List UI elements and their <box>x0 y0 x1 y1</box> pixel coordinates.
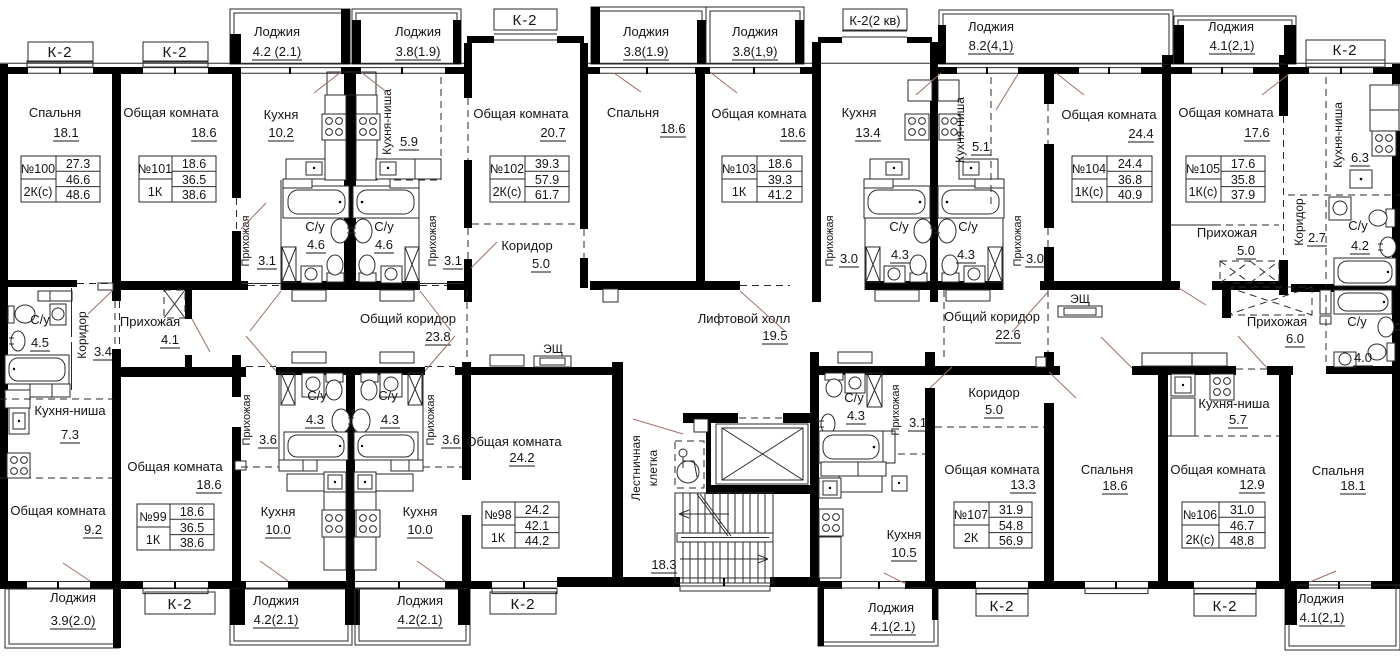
svg-text:61.7: 61.7 <box>535 188 559 202</box>
svg-text:Прихожая: Прихожая <box>1197 225 1257 240</box>
svg-text:Лоджия: Лоджия <box>50 590 96 605</box>
svg-text:18.6: 18.6 <box>1102 478 1127 493</box>
svg-text:3.8(1.9): 3.8(1.9) <box>624 44 669 59</box>
svg-text:Лоджия: Лоджия <box>253 593 299 608</box>
svg-text:Лоджия: Лоджия <box>968 19 1014 34</box>
svg-text:С/у: С/у <box>1347 314 1367 329</box>
svg-text:5.0: 5.0 <box>532 256 550 271</box>
svg-text:48.8: 48.8 <box>1230 534 1254 548</box>
svg-text:Кухня: Кухня <box>403 504 438 519</box>
svg-text:Лоджия: Лоджия <box>623 24 669 39</box>
svg-text:5.7: 5.7 <box>1229 412 1247 427</box>
svg-text:Кухня-ниша: Кухня-ниша <box>1331 102 1345 168</box>
svg-text:18.1: 18.1 <box>53 125 78 140</box>
svg-text:13.3: 13.3 <box>1010 477 1035 492</box>
svg-text:18.6: 18.6 <box>191 125 216 140</box>
svg-text:Общая комната: Общая комната <box>944 462 1040 477</box>
svg-text:№104: №104 <box>1072 162 1106 176</box>
svg-text:13.4: 13.4 <box>855 125 880 140</box>
svg-text:Общая комната: Общая комната <box>10 503 106 518</box>
svg-text:С/у: С/у <box>1348 218 1368 233</box>
svg-text:Кухня-ниша: Кухня-ниша <box>34 403 106 418</box>
svg-text:3.1: 3.1 <box>444 253 462 268</box>
svg-text:18.6: 18.6 <box>768 157 792 171</box>
svg-text:38.6: 38.6 <box>180 536 204 550</box>
svg-text:18.6: 18.6 <box>182 157 206 171</box>
svg-text:2К(с): 2К(с) <box>24 185 53 199</box>
svg-text:Кухня-ниша: Кухня-ниша <box>953 97 967 163</box>
svg-text:9.2: 9.2 <box>84 522 102 537</box>
svg-text:1К: 1К <box>146 533 161 547</box>
svg-text:К-2(2 кв): К-2(2 кв) <box>849 13 900 28</box>
svg-text:1К(с): 1К(с) <box>1075 185 1104 199</box>
svg-text:1К(с): 1К(с) <box>1189 185 1218 199</box>
svg-text:27.3: 27.3 <box>66 157 90 171</box>
svg-text:4.1: 4.1 <box>161 332 179 347</box>
svg-text:К-2: К-2 <box>1332 42 1357 59</box>
svg-text:4.1(2.1): 4.1(2.1) <box>871 619 916 634</box>
svg-text:31.9: 31.9 <box>999 503 1023 517</box>
svg-text:17.6: 17.6 <box>1244 125 1269 140</box>
svg-text:12.9: 12.9 <box>1239 477 1264 492</box>
svg-text:56.9: 56.9 <box>999 534 1023 548</box>
svg-text:5.0: 5.0 <box>1237 243 1255 258</box>
svg-text:Общая комната: Общая комната <box>711 106 807 121</box>
svg-text:4.3: 4.3 <box>306 412 324 427</box>
svg-text:36.5: 36.5 <box>180 521 204 535</box>
svg-text:Общая комната: Общая комната <box>466 434 562 449</box>
svg-text:4.2(2.1): 4.2(2.1) <box>398 612 443 627</box>
svg-text:Кухня: Кухня <box>261 504 296 519</box>
svg-text:4.2 (2.1): 4.2 (2.1) <box>253 44 301 59</box>
svg-text:С/у: С/у <box>30 312 50 327</box>
svg-text:4.1(2,1): 4.1(2,1) <box>1300 610 1345 625</box>
svg-text:Кухня: Кухня <box>264 107 299 122</box>
svg-text:3.4: 3.4 <box>94 344 112 359</box>
svg-text:Лоджия: Лоджия <box>397 593 443 608</box>
svg-text:42.1: 42.1 <box>525 519 549 533</box>
svg-text:3.1: 3.1 <box>909 415 927 430</box>
svg-text:36.8: 36.8 <box>1118 173 1142 187</box>
svg-text:4.5: 4.5 <box>31 335 49 350</box>
svg-text:№101: №101 <box>138 162 172 176</box>
svg-text:Лоджия: Лоджия <box>1208 19 1254 34</box>
svg-text:Лоджия: Лоджия <box>732 24 778 39</box>
svg-text:№99: №99 <box>139 510 166 524</box>
svg-text:Прихожая: Прихожая <box>427 215 439 266</box>
svg-text:3.0: 3.0 <box>840 251 858 266</box>
svg-text:18.6: 18.6 <box>660 121 685 136</box>
svg-text:39.3: 39.3 <box>768 173 792 187</box>
svg-text:С/у: С/у <box>305 219 325 234</box>
svg-text:41.2: 41.2 <box>768 188 792 202</box>
svg-text:3.0: 3.0 <box>1026 251 1044 266</box>
svg-text:39.3: 39.3 <box>535 157 559 171</box>
svg-text:С/у: С/у <box>889 219 909 234</box>
svg-text:Прихожая: Прихожая <box>1247 314 1307 329</box>
svg-text:23.8: 23.8 <box>425 329 450 344</box>
svg-text:4.2(2.1): 4.2(2.1) <box>254 612 299 627</box>
svg-text:Кухня: Кухня <box>887 527 922 542</box>
svg-text:С/у: С/у <box>378 388 398 403</box>
svg-text:54.8: 54.8 <box>999 519 1023 533</box>
svg-text:2.7: 2.7 <box>1308 230 1326 245</box>
svg-text:№100: №100 <box>21 162 55 176</box>
svg-text:3.6: 3.6 <box>259 432 277 447</box>
svg-text:18.6: 18.6 <box>196 477 221 492</box>
svg-text:2К(с): 2К(с) <box>493 185 522 199</box>
svg-text:3.8(1,9): 3.8(1,9) <box>733 44 778 59</box>
svg-text:К-2: К-2 <box>167 596 192 613</box>
svg-text:1К: 1К <box>148 185 163 199</box>
svg-text:ЭЩ: ЭЩ <box>1070 292 1090 306</box>
svg-text:К-2: К-2 <box>512 12 537 29</box>
svg-text:Прихожая: Прихожая <box>120 314 180 329</box>
svg-text:Лоджия: Лоджия <box>254 24 300 39</box>
svg-text:46.7: 46.7 <box>1230 519 1254 533</box>
svg-text:24.2: 24.2 <box>525 503 549 517</box>
svg-text:Лоджия: Лоджия <box>868 600 914 615</box>
svg-text:4.3: 4.3 <box>891 247 909 262</box>
svg-text:Спальня: Спальня <box>607 105 659 120</box>
svg-text:4.6: 4.6 <box>307 237 325 252</box>
svg-text:Коридор: Коридор <box>75 311 89 359</box>
svg-text:С/у: С/у <box>307 388 327 403</box>
svg-text:4.3: 4.3 <box>381 412 399 427</box>
svg-text:4.2: 4.2 <box>1351 238 1369 253</box>
svg-text:Прихожая: Прихожая <box>824 215 836 266</box>
svg-text:18.6: 18.6 <box>780 125 805 140</box>
svg-text:Спальня: Спальня <box>1312 463 1364 478</box>
svg-text:Кухня-ниша: Кухня-ниша <box>380 89 394 155</box>
svg-text:Прихожая: Прихожая <box>890 384 902 435</box>
svg-text:2К: 2К <box>964 531 979 545</box>
svg-text:57.9: 57.9 <box>535 173 559 187</box>
svg-text:35.8: 35.8 <box>1231 173 1255 187</box>
svg-text:10.5: 10.5 <box>891 545 916 560</box>
svg-text:4.6: 4.6 <box>375 237 393 252</box>
svg-text:18.1: 18.1 <box>1340 478 1365 493</box>
svg-text:Коридор: Коридор <box>968 385 1019 400</box>
svg-text:10.0: 10.0 <box>407 522 432 537</box>
svg-text:46.6: 46.6 <box>66 173 90 187</box>
svg-text:5.9: 5.9 <box>400 134 418 149</box>
svg-text:3.6: 3.6 <box>442 432 460 447</box>
svg-text:№107: №107 <box>954 508 988 522</box>
svg-text:Спальня: Спальня <box>1081 462 1133 477</box>
svg-text:Общая комната: Общая комната <box>127 459 223 474</box>
svg-text:20.7: 20.7 <box>540 125 565 140</box>
svg-text:С/у: С/у <box>958 219 978 234</box>
svg-text:№102: №102 <box>490 162 524 176</box>
svg-text:Лоджия: Лоджия <box>395 24 441 39</box>
svg-text:№103: №103 <box>722 162 756 176</box>
svg-text:Кухня-ниша: Кухня-ниша <box>1198 396 1270 411</box>
svg-text:3.1: 3.1 <box>258 253 276 268</box>
svg-text:22.6: 22.6 <box>995 327 1020 342</box>
svg-text:К-2: К-2 <box>510 596 535 613</box>
svg-text:31.0: 31.0 <box>1230 503 1254 517</box>
svg-text:5.0: 5.0 <box>985 402 1003 417</box>
svg-text:36.5: 36.5 <box>182 173 206 187</box>
svg-text:24.4: 24.4 <box>1128 126 1153 141</box>
svg-text:7.3: 7.3 <box>61 427 79 442</box>
svg-text:24.4: 24.4 <box>1118 157 1142 171</box>
svg-text:Лестничная: Лестничная <box>629 435 643 500</box>
svg-text:Прихожая: Прихожая <box>425 394 437 445</box>
svg-text:№98: №98 <box>484 508 511 522</box>
svg-text:Прихожая: Прихожая <box>1012 215 1024 266</box>
svg-text:С/у: С/у <box>844 390 864 405</box>
svg-text:3.8(1.9): 3.8(1.9) <box>396 44 441 59</box>
svg-text:44.2: 44.2 <box>525 534 549 548</box>
svg-text:48.6: 48.6 <box>66 188 90 202</box>
svg-text:38.6: 38.6 <box>182 188 206 202</box>
svg-text:К-2: К-2 <box>162 44 187 61</box>
svg-text:4.0: 4.0 <box>1354 350 1372 365</box>
svg-text:Общая комната: Общая комната <box>1170 462 1266 477</box>
svg-text:Общая комната: Общая комната <box>1061 107 1157 122</box>
svg-text:Прихожая: Прихожая <box>241 394 253 445</box>
svg-text:Коридор: Коридор <box>501 238 552 253</box>
svg-text:4.3: 4.3 <box>847 408 865 423</box>
svg-text:17.6: 17.6 <box>1231 157 1255 171</box>
svg-text:Общая комната: Общая комната <box>1178 105 1274 120</box>
svg-text:2К(с): 2К(с) <box>1186 533 1215 547</box>
svg-text:10.2: 10.2 <box>268 125 293 140</box>
svg-text:1К: 1К <box>491 531 506 545</box>
svg-text:ЭЩ: ЭЩ <box>543 342 563 356</box>
svg-text:3.9(2.0): 3.9(2.0) <box>51 613 96 628</box>
svg-text:Лоджия: Лоджия <box>1298 591 1344 606</box>
svg-text:К-2: К-2 <box>47 44 72 61</box>
svg-text:Общая комната: Общая комната <box>473 106 569 121</box>
svg-text:6.0: 6.0 <box>1286 331 1304 346</box>
svg-text:клетка: клетка <box>646 450 660 487</box>
svg-text:К-2: К-2 <box>989 598 1014 615</box>
svg-text:37.9: 37.9 <box>1231 188 1255 202</box>
svg-text:№106: №106 <box>1183 508 1217 522</box>
svg-text:18.3: 18.3 <box>651 557 676 572</box>
svg-text:№105: №105 <box>1186 162 1220 176</box>
svg-text:4.1(2,1): 4.1(2,1) <box>1210 38 1255 53</box>
svg-text:5.1: 5.1 <box>972 139 990 154</box>
svg-text:С/у: С/у <box>374 219 394 234</box>
svg-text:24.2: 24.2 <box>509 450 534 465</box>
svg-text:18.6: 18.6 <box>180 505 204 519</box>
svg-text:6.3: 6.3 <box>1351 150 1369 165</box>
svg-text:Кухня: Кухня <box>842 105 877 120</box>
svg-text:8.2(4,1): 8.2(4,1) <box>969 38 1014 53</box>
svg-text:40.9: 40.9 <box>1118 188 1142 202</box>
svg-text:1К: 1К <box>732 185 747 199</box>
svg-text:Спальня: Спальня <box>29 105 81 120</box>
svg-text:Общая комната: Общая комната <box>123 105 219 120</box>
svg-text:4.3: 4.3 <box>957 247 975 262</box>
svg-text:Коридор: Коридор <box>1292 198 1306 246</box>
svg-text:К-2: К-2 <box>1212 598 1237 615</box>
svg-text:10.0: 10.0 <box>265 522 290 537</box>
